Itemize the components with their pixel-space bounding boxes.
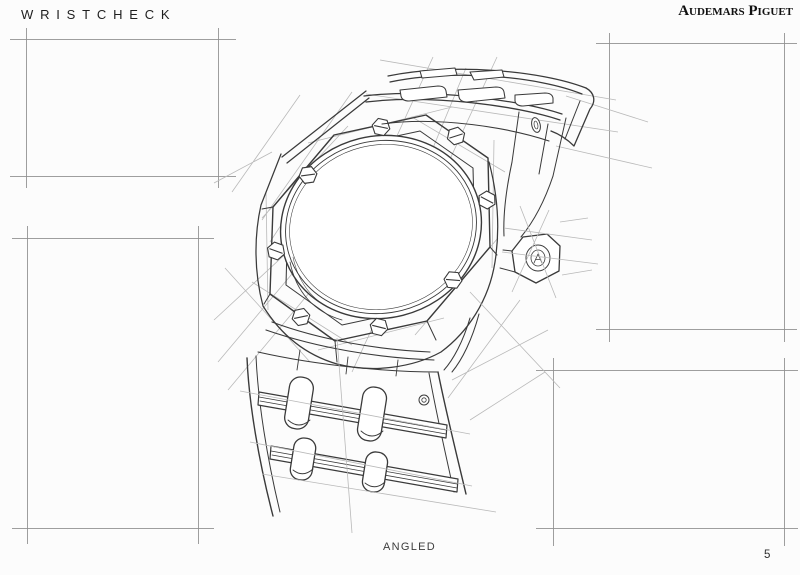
lookbook-page: WRISTCHECK Audemars Piguet: [0, 0, 800, 575]
bracelet-bottom: [247, 314, 479, 516]
page-number: 5: [764, 549, 770, 561]
case-bottom-face: [258, 322, 438, 376]
view-caption: ANGLED: [383, 541, 436, 553]
watch-sketch: [0, 0, 800, 575]
